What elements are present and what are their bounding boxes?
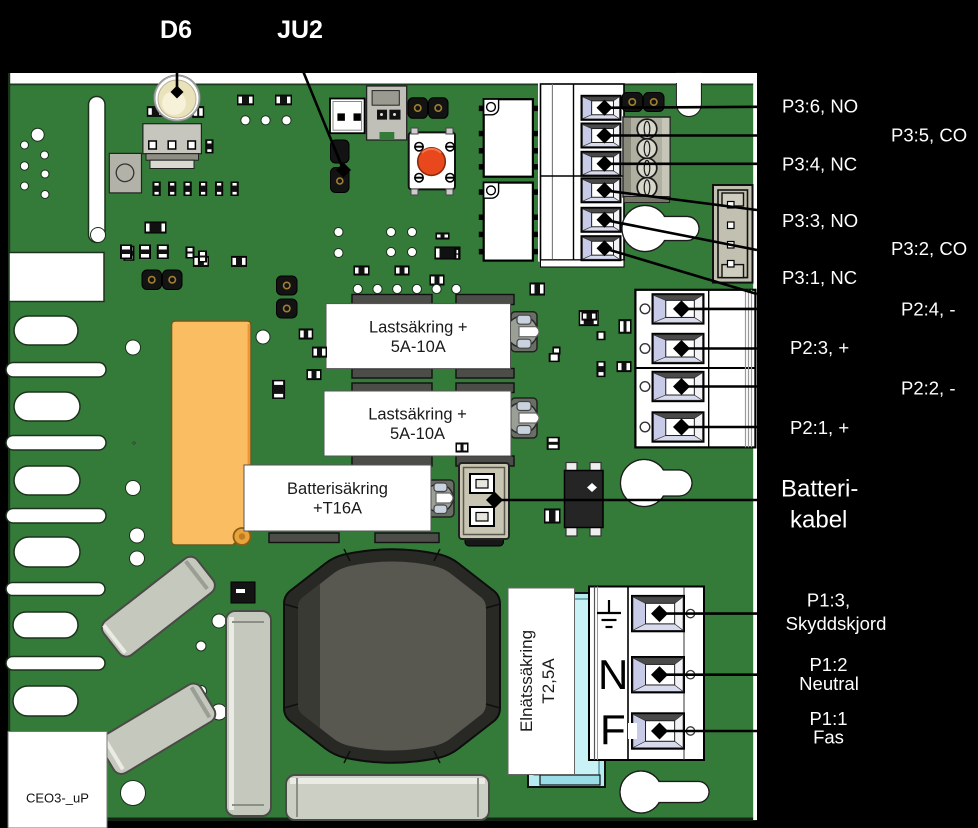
svg-text:Batterisäkring: Batterisäkring bbox=[287, 480, 388, 498]
svg-text:Batteri-: Batteri- bbox=[781, 476, 858, 503]
svg-text:P3:3, NO: P3:3, NO bbox=[782, 210, 858, 231]
svg-text:Elnätssäkring: Elnätssäkring bbox=[517, 630, 536, 732]
svg-text:T2,5A: T2,5A bbox=[539, 658, 558, 704]
svg-text:Neutral: Neutral bbox=[799, 673, 859, 694]
svg-text:Lastsäkring +: Lastsäkring + bbox=[368, 406, 467, 424]
svg-text:N: N bbox=[598, 651, 628, 698]
svg-text:kabel: kabel bbox=[790, 507, 847, 534]
svg-text:F: F bbox=[600, 706, 626, 753]
svg-text:JU2: JU2 bbox=[277, 16, 323, 44]
svg-text:P1:3,: P1:3, bbox=[807, 589, 850, 610]
svg-text:P2:2, -: P2:2, - bbox=[901, 378, 956, 399]
svg-text:P2:3, +: P2:3, + bbox=[790, 337, 849, 358]
svg-text:5A-10A: 5A-10A bbox=[390, 425, 445, 443]
svg-text:P2:1, +: P2:1, + bbox=[790, 417, 849, 438]
svg-text:P2:4, -: P2:4, - bbox=[901, 299, 956, 320]
svg-text:D6: D6 bbox=[160, 16, 192, 44]
svg-text:P3:5, CO: P3:5, CO bbox=[891, 125, 967, 146]
svg-text:+T16A: +T16A bbox=[313, 500, 362, 518]
svg-text:Fas: Fas bbox=[813, 726, 844, 747]
svg-text:P3:1, NC: P3:1, NC bbox=[782, 267, 857, 288]
svg-text:P3:2, CO: P3:2, CO bbox=[891, 238, 967, 259]
svg-text:P3:6, NO: P3:6, NO bbox=[782, 96, 858, 117]
svg-text:Lastsäkring +: Lastsäkring + bbox=[369, 318, 468, 336]
svg-text:5A-10A: 5A-10A bbox=[391, 338, 446, 356]
svg-text:P1:2: P1:2 bbox=[809, 654, 847, 675]
svg-text:CEO3-_uP: CEO3-_uP bbox=[26, 791, 89, 806]
svg-text:P3:4, NC: P3:4, NC bbox=[782, 154, 857, 175]
svg-text:Skyddskjord: Skyddskjord bbox=[786, 613, 887, 634]
